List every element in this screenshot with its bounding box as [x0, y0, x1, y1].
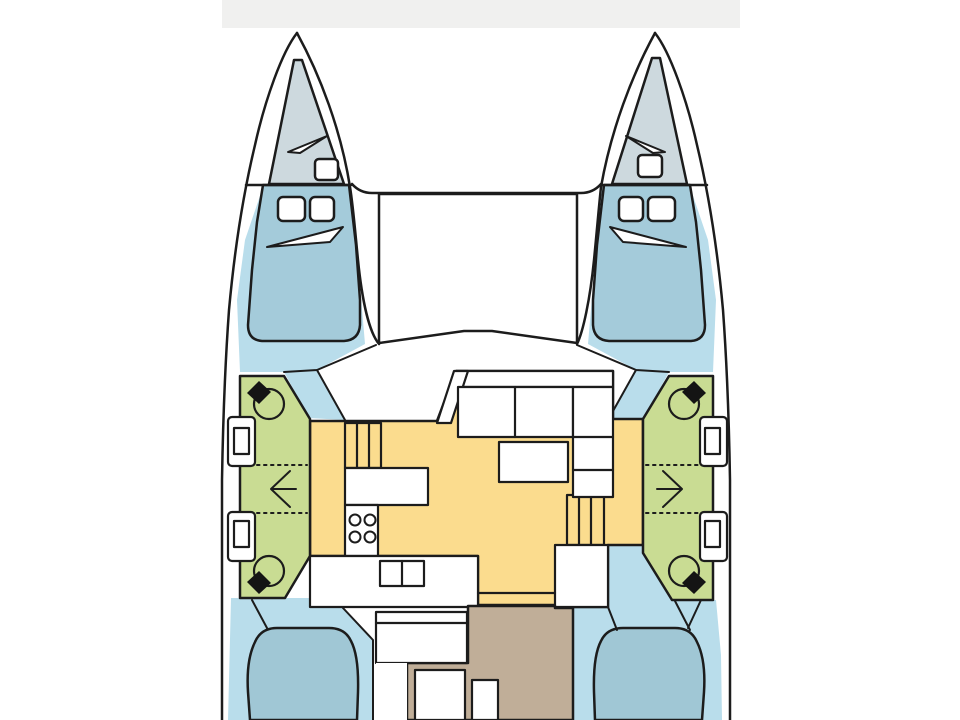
sofa-side-seat	[573, 387, 613, 497]
port-companionway-stairs	[345, 423, 381, 468]
saloon-table	[499, 442, 568, 482]
mast-beam	[352, 184, 601, 193]
starboard-deck-hatch-2	[619, 197, 643, 221]
cockpit-table-leaf	[472, 680, 498, 720]
port-forepeak-hatch	[315, 159, 338, 180]
port-head-compartment	[240, 376, 310, 598]
starboard-window-aft-pane	[705, 521, 720, 547]
starboard-window-fwd-pane	[705, 428, 720, 454]
starboard-aft-berth	[594, 628, 704, 720]
starboard-companionway-stairs	[567, 495, 604, 545]
catamaran-layout-plan	[0, 0, 960, 720]
port-window-fwd-pane	[234, 428, 249, 454]
starboard-deck-hatch-1	[648, 197, 675, 221]
cockpit-module	[376, 612, 467, 663]
port-aft-berth	[248, 628, 358, 720]
nav-station-module	[555, 545, 608, 607]
galley-counter-fwd	[345, 468, 428, 505]
galley-stove-counter	[345, 505, 378, 556]
cockpit-side-deck	[376, 663, 407, 720]
cockpit-seat	[415, 670, 465, 720]
sofa-back-front	[456, 371, 613, 387]
port-deck-hatch-1	[278, 197, 305, 221]
starboard-forepeak-hatch	[638, 155, 662, 177]
page-top-strip	[222, 0, 740, 28]
port-deck-hatch-2	[310, 197, 334, 221]
trampoline	[379, 194, 577, 343]
boat-plan-svg	[0, 0, 960, 720]
port-window-aft-pane	[234, 521, 249, 547]
